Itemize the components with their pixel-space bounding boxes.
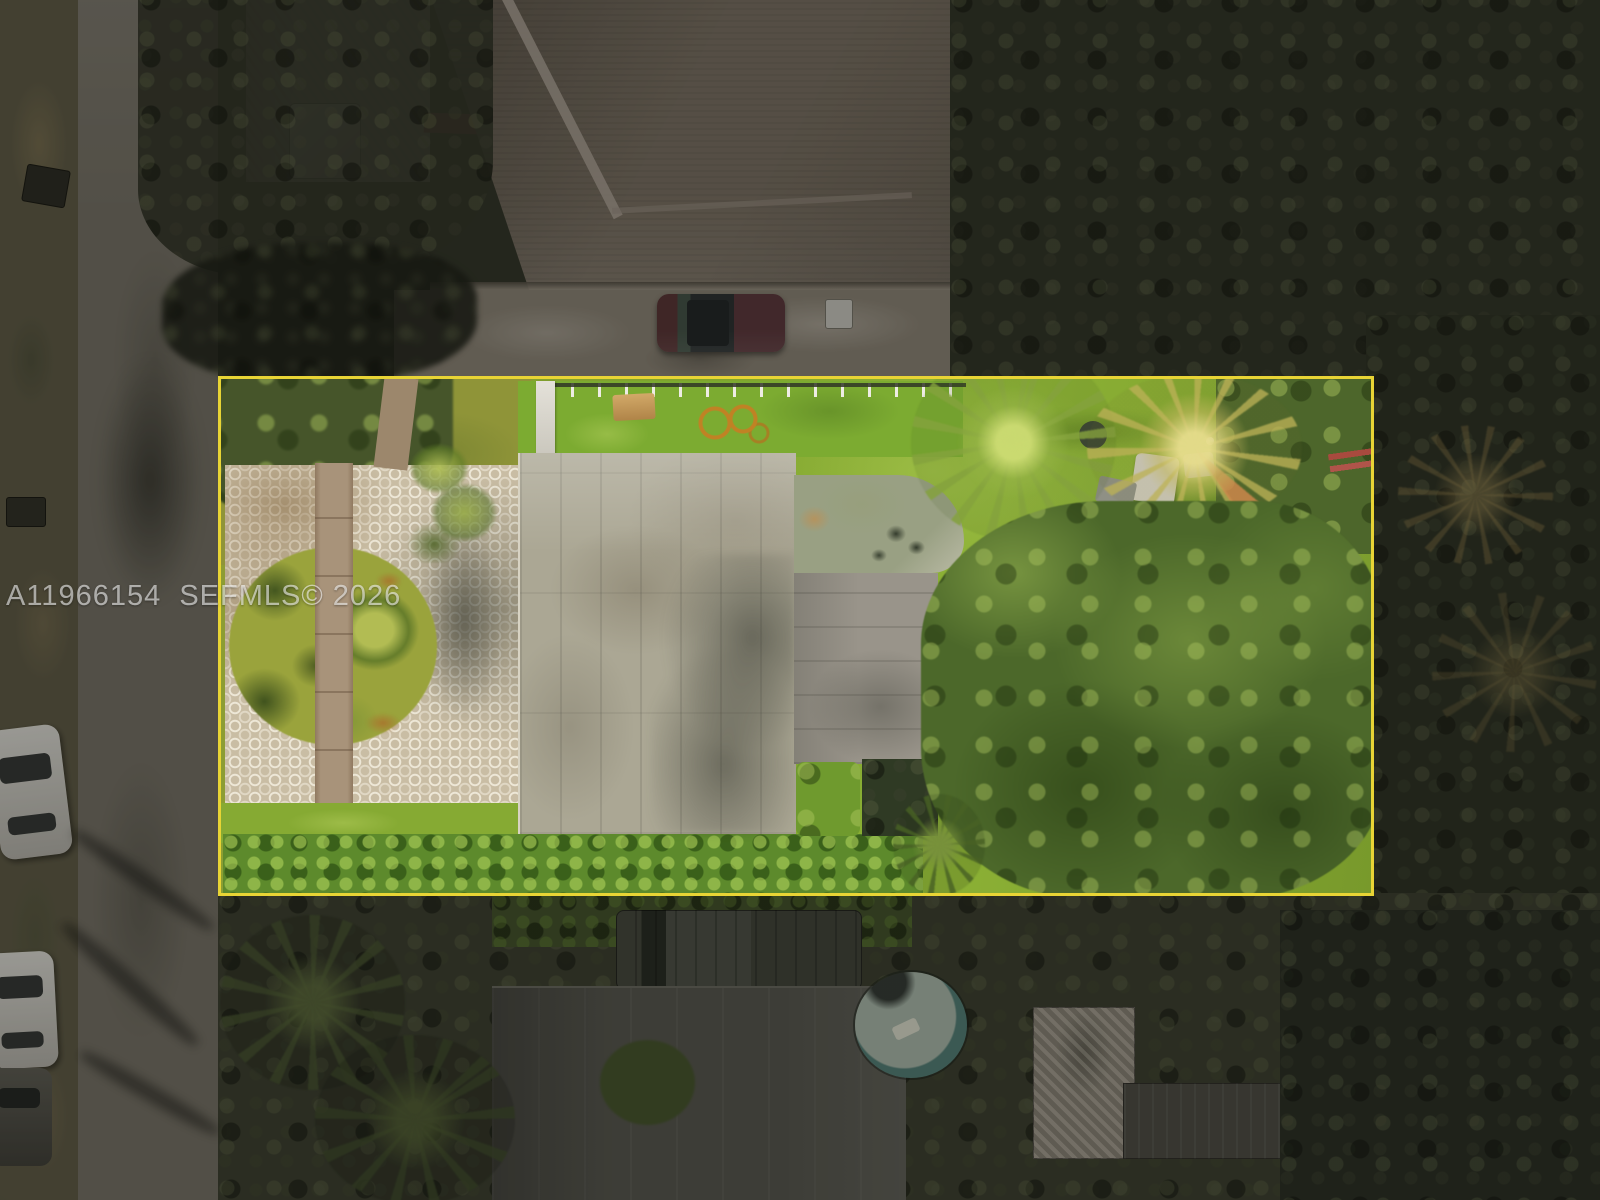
tree-overhang-street-corner (162, 243, 477, 383)
trees-top-left (138, 0, 493, 275)
tree-shadow-on-roof (651, 554, 796, 834)
rust-stain (359, 709, 407, 737)
backyard-palm (893, 794, 985, 896)
garden-hose-coil (687, 395, 777, 451)
courtyard-grass (796, 762, 860, 836)
picnic-table (612, 393, 655, 421)
suv-windshield (687, 300, 729, 346)
ac-unit (825, 299, 853, 329)
front-walkway (315, 463, 353, 809)
neighbor-hip-roof (428, 0, 958, 292)
car-windshield (0, 1088, 40, 1108)
neighbor-flat-roof-bottom (492, 986, 906, 1200)
parked-dark-car (0, 1068, 52, 1166)
neighbor-deck-bottom-right (1123, 1083, 1283, 1159)
roof-extension (794, 573, 938, 764)
trash-bin (6, 497, 46, 527)
large-tree-canopy (921, 501, 1374, 896)
aerial-photo: A11966154 SEFMLS© 2026 (0, 0, 1600, 1200)
property-boundary (218, 376, 1374, 896)
car-windshield (0, 975, 43, 999)
trees-bottom-right (1280, 910, 1600, 1200)
boundary-hedge (223, 834, 923, 896)
mls-watermark: A11966154 SEFMLS© 2026 (6, 580, 401, 613)
dry-palm-crown (1432, 592, 1597, 752)
white-gate (536, 381, 555, 459)
car-rear-window (7, 812, 57, 836)
dry-palm-crown (1398, 425, 1553, 565)
parked-white-car (0, 950, 59, 1069)
pickup-truck (616, 910, 862, 990)
trash-bin (21, 163, 71, 208)
car-rear-window (1, 1031, 44, 1049)
palm-tree (315, 1035, 515, 1200)
neighbor-structure-bottom-right (1033, 1007, 1135, 1159)
car-windshield (0, 752, 52, 784)
dark-red-suv (657, 294, 785, 352)
palms-by-entry (404, 437, 504, 563)
round-shrub (600, 1040, 695, 1125)
